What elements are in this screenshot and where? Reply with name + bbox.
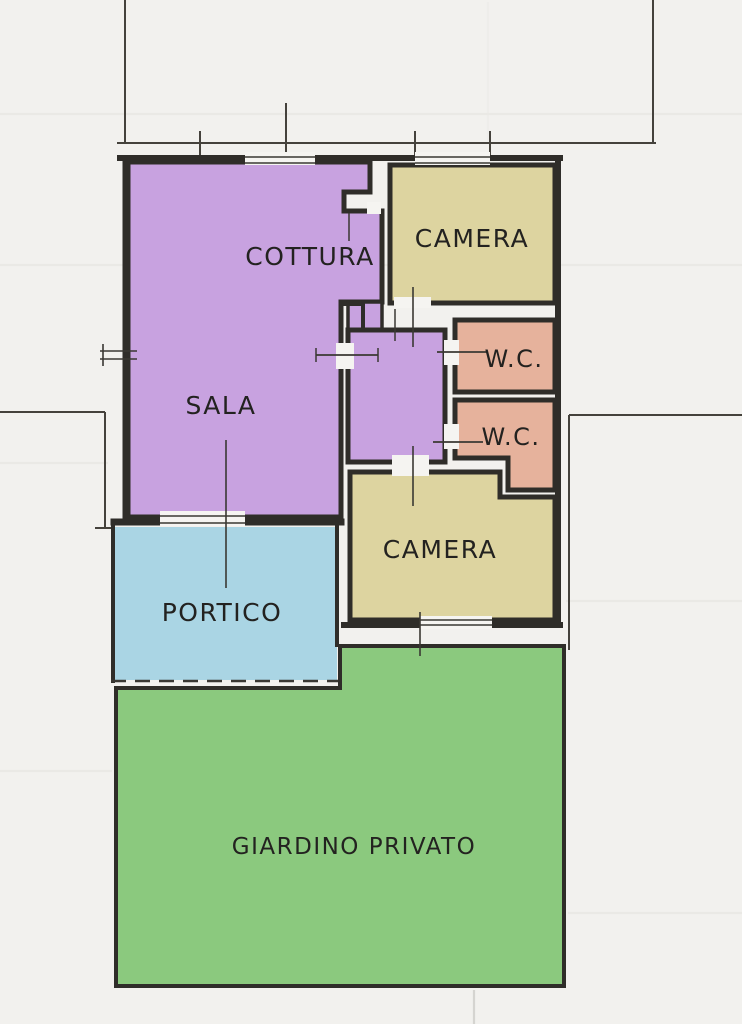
label-wc-north: W.C. — [485, 345, 544, 373]
window-camera-south-bottom — [420, 616, 492, 629]
door-gap-cottura-niche — [367, 202, 381, 214]
label-portico: PORTICO — [162, 598, 283, 627]
label-cottura: COTTURA — [245, 242, 375, 271]
label-giardino: GIARDINO PRIVATO — [232, 834, 476, 860]
door-gap-sala-hallway — [336, 343, 354, 369]
window-sala-portico — [160, 511, 245, 526]
window-camera-north-top — [415, 152, 490, 165]
floor-plan-drawing: COTTURA CAMERA SALA W.C. W.C. CAMERA POR… — [0, 0, 742, 1024]
door-gap-hallway-camera-south — [392, 455, 429, 476]
room-hallway — [348, 330, 445, 462]
door-gap-hallway-wc-south — [444, 424, 459, 449]
label-camera-north: CAMERA — [415, 224, 529, 253]
label-wc-south: W.C. — [482, 423, 541, 451]
label-camera-south: CAMERA — [383, 535, 497, 564]
window-gap — [420, 616, 492, 629]
label-sala: SALA — [185, 391, 256, 420]
room-giardino — [116, 646, 564, 986]
floor-plan-page: COTTURA CAMERA SALA W.C. W.C. CAMERA POR… — [0, 0, 742, 1024]
window-cottura-top — [245, 152, 315, 165]
